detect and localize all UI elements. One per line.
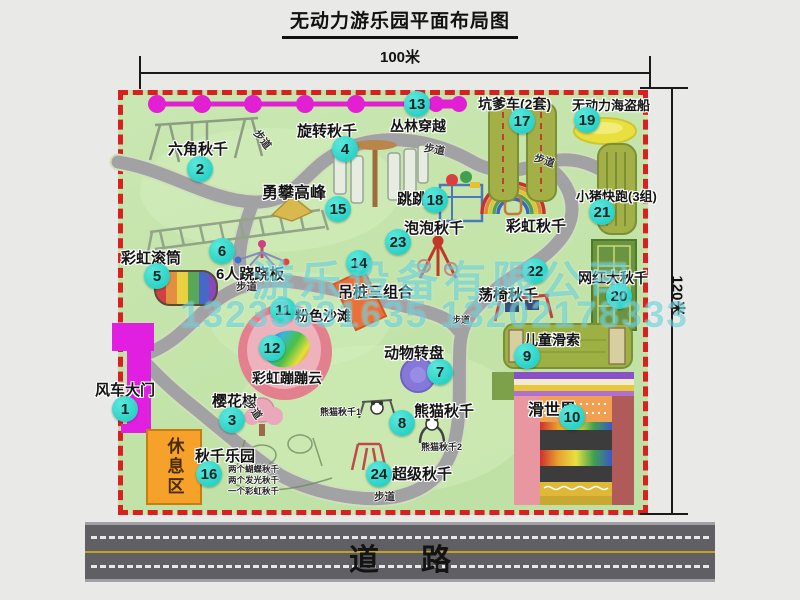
badge-6: 6 xyxy=(209,238,235,264)
label-super-swing: 超级秋千 xyxy=(392,463,452,484)
label-swing-park-note-3: 一个彩虹秋千 xyxy=(228,486,279,497)
label-hanging-pile: 吊桩三组合 xyxy=(338,281,413,302)
page-title: 无动力游乐园平面布局图 xyxy=(282,6,518,39)
top-dimension-tick-left xyxy=(139,56,141,89)
badge-15: 15 xyxy=(325,196,351,222)
badge-13: 13 xyxy=(404,91,430,117)
badge-20: 20 xyxy=(606,283,632,309)
trail-label-7: 步道 xyxy=(452,313,470,326)
badge-3: 3 xyxy=(219,407,245,433)
badge-12: 12 xyxy=(259,335,285,361)
label-panda-swing-1: 熊猫秋千1 xyxy=(320,405,361,418)
badge-7: 7 xyxy=(427,359,453,385)
top-dimension-tick-right xyxy=(649,56,651,89)
road-label: 道路 xyxy=(85,535,715,579)
label-panda-swing-2: 熊猫秋千2 xyxy=(421,440,462,453)
label-rainbow-swing: 彩虹秋千 xyxy=(506,215,566,236)
badge-17: 17 xyxy=(509,108,535,134)
top-dimension-line xyxy=(140,72,650,74)
right-dimension-tick-top xyxy=(640,87,688,89)
rest-area-label: 休息区 xyxy=(162,437,187,497)
rest-area: 休息区 xyxy=(146,429,202,505)
right-dimension-tick-bottom xyxy=(640,513,688,515)
badge-24: 24 xyxy=(366,461,392,487)
label-panda-swing: 熊猫秋千 xyxy=(414,400,474,421)
width-dimension-label: 100米 xyxy=(370,46,430,67)
badge-21: 21 xyxy=(589,199,615,225)
badge-18: 18 xyxy=(422,187,448,213)
road: 道路 xyxy=(85,522,715,582)
badge-5: 5 xyxy=(144,263,170,289)
trail-label-6: 步道 xyxy=(374,489,395,504)
badge-14: 14 xyxy=(346,250,372,276)
badge-19: 19 xyxy=(574,107,600,133)
badge-23: 23 xyxy=(385,229,411,255)
badge-8: 8 xyxy=(389,410,415,436)
label-piggy-run: 小猪快跑(3组) xyxy=(576,186,657,205)
label-swing-park-note-2: 两个发光秋千 xyxy=(228,475,279,486)
label-jungle-crossing: 丛林穿越 xyxy=(390,116,446,136)
page-title-wrap: 无动力游乐园平面布局图 xyxy=(0,6,800,39)
badge-22: 22 xyxy=(522,258,548,284)
badge-4: 4 xyxy=(332,136,358,162)
playground-layout-screenshot: { "title": "无动力游乐园平面布局图", "dimensions": … xyxy=(0,0,800,600)
label-swing-park-note-1: 两个蝴蝶秋千 xyxy=(228,464,279,475)
height-dimension-label: 120米 xyxy=(668,266,689,326)
trail-label-4: 步道 xyxy=(236,279,257,294)
label-swing-chair: 荡椅秋千 xyxy=(478,284,538,305)
badge-10: 10 xyxy=(559,404,585,430)
badge-16: 16 xyxy=(196,461,222,487)
label-bubble-swing: 泡泡秋千 xyxy=(404,217,464,238)
label-climbing-peak: 勇攀高峰 xyxy=(262,179,326,203)
badge-2: 2 xyxy=(187,156,213,182)
badge-1: 1 xyxy=(112,396,138,422)
badge-11: 11 xyxy=(270,297,296,323)
label-pink-beach: 粉色沙滩 xyxy=(295,306,351,326)
label-rainbow-cloud: 彩虹蹦蹦云 xyxy=(252,368,322,388)
badge-9: 9 xyxy=(514,343,540,369)
